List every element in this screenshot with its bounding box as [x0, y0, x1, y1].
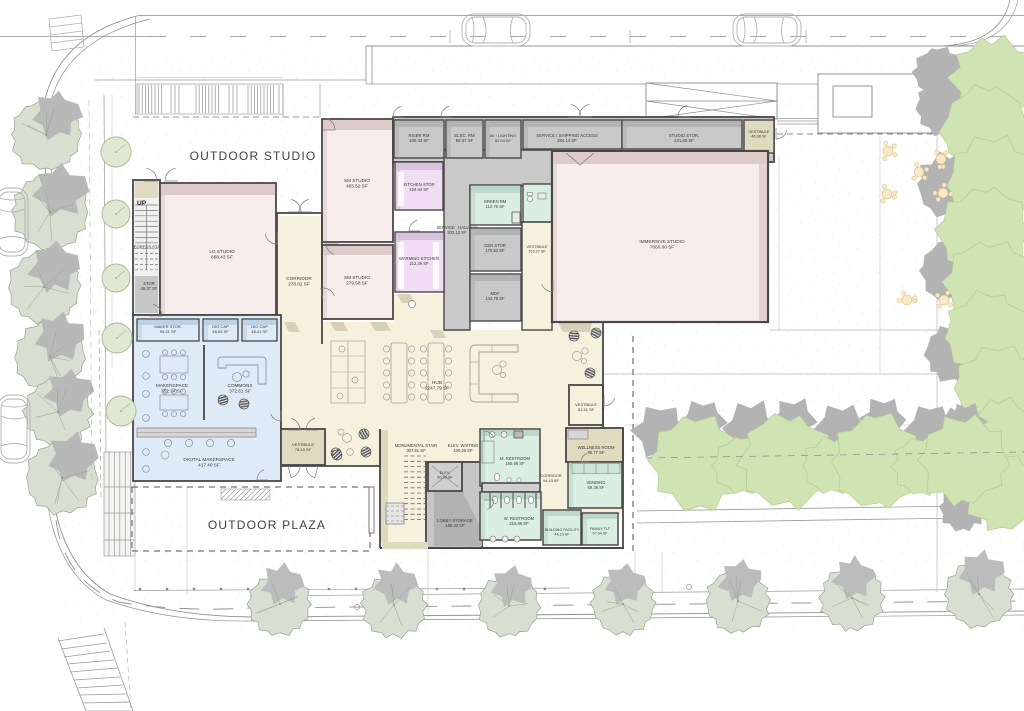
svg-text:GEN STOR170.53 SF: GEN STOR170.53 SF — [484, 243, 506, 253]
svg-text:DIG CAP48.41 SF: DIG CAP48.41 SF — [251, 324, 268, 334]
svg-text:CORRIDOR94.43 SF: CORRIDOR94.43 SF — [540, 473, 561, 483]
svg-text:VESTIBULE78.15 SF: VESTIBULE78.15 SF — [292, 442, 314, 452]
svg-text:GREEN RM112.76 SF: GREEN RM112.76 SF — [484, 199, 507, 209]
svg-text:ELEC. RM88.37 SF: ELEC. RM88.37 SF — [454, 133, 475, 143]
svg-text:SM STUDIO279.58 SF: SM STUDIO279.58 SF — [344, 275, 370, 286]
svg-text:RISER RM106.43 SF: RISER RM106.43 SF — [408, 133, 429, 143]
svg-text:VESTIBULE46.38 SF: VESTIBULE46.38 SF — [749, 130, 770, 139]
svg-text:VENDING69.38 SF: VENDING69.38 SF — [586, 480, 605, 490]
svg-text:SM STUDIO465.52 SF: SM STUDIO465.52 SF — [344, 178, 370, 189]
svg-text:VESTIBULE81.31 SF: VESTIBULE81.31 SF — [575, 402, 597, 412]
svg-text:DIG CAP48.63 SF: DIG CAP48.63 SF — [212, 324, 229, 334]
svg-text:OUTDOOR STUDIO: OUTDOOR STUDIO — [190, 149, 317, 163]
svg-text:COMMONS372.61 SF: COMMONS372.61 SF — [228, 383, 253, 394]
svg-text:LG STUDIO868.43 SF: LG STUDIO868.43 SF — [209, 249, 235, 260]
svg-text:OUTDOOR PLAZA: OUTDOOR PLAZA — [208, 518, 326, 532]
svg-text:UP: UP — [137, 200, 147, 207]
svg-text:VESTIBULE153.27 SF: VESTIBULE153.27 SF — [527, 245, 548, 254]
svg-text:CORRIDOR278.82 SF: CORRIDOR278.82 SF — [286, 276, 312, 287]
